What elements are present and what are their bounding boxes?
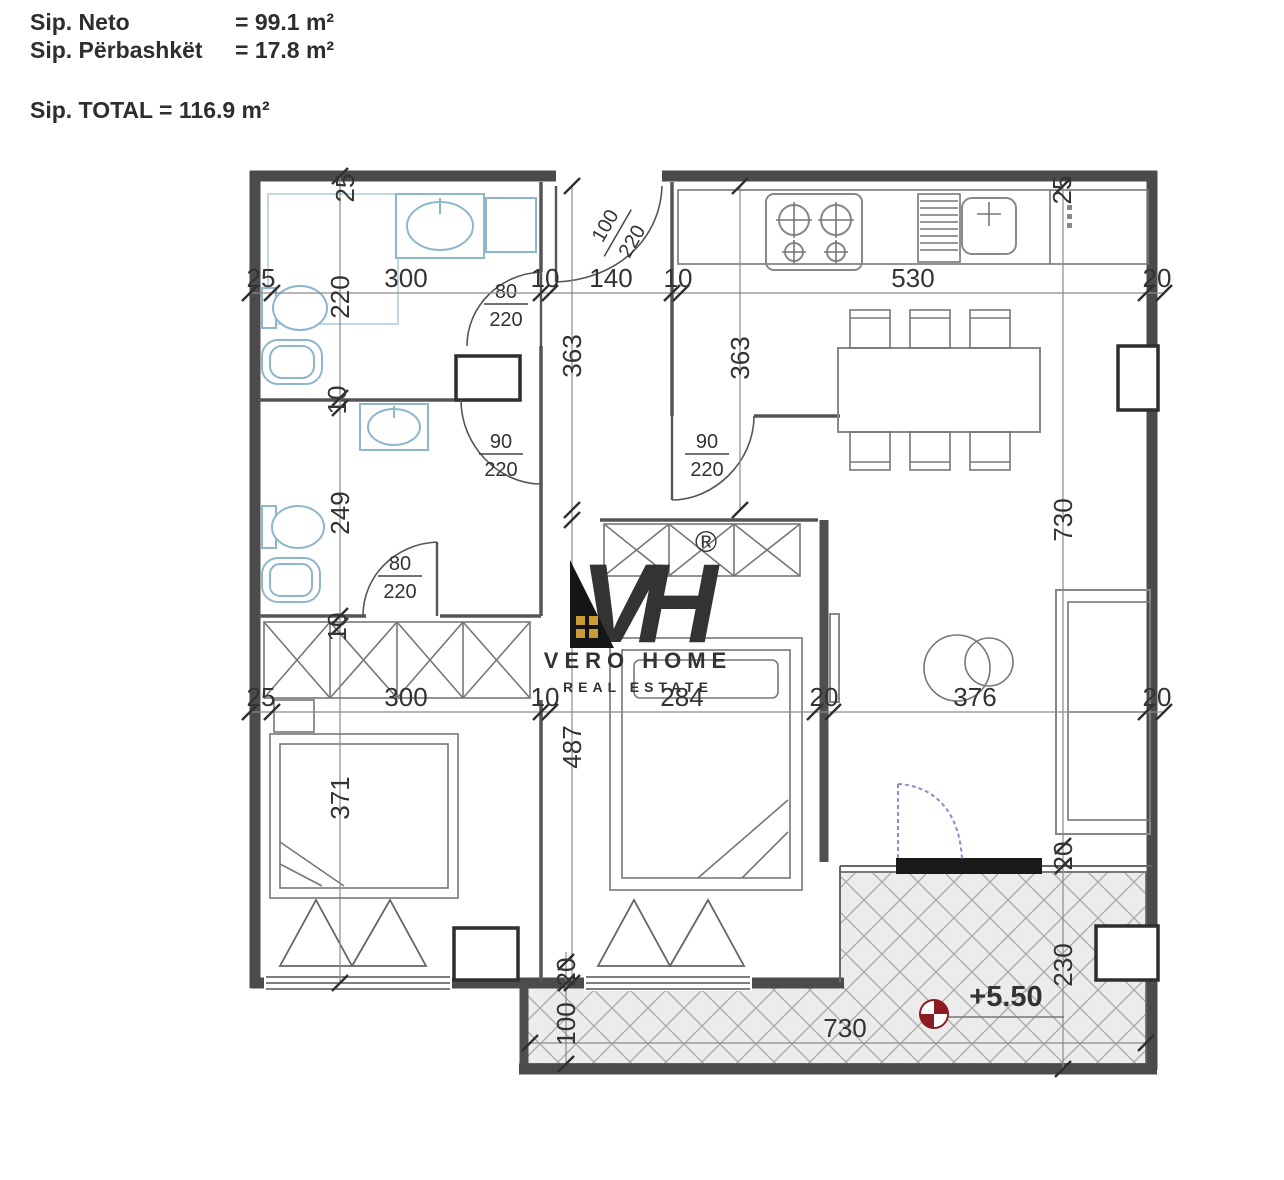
wall-column [1118, 346, 1158, 410]
dim-label: 10 [322, 386, 352, 415]
chair [910, 310, 950, 348]
dining-area [838, 310, 1040, 470]
dim-label: 25 [247, 263, 276, 293]
dim-label: 20 [1143, 263, 1172, 293]
door-width: 80 [389, 553, 411, 575]
terrace-door-sill [896, 858, 1042, 874]
dim-label: 10 [531, 263, 560, 293]
dim-label: 20 [1143, 682, 1172, 712]
elevation-value: +5.50 [969, 981, 1042, 1013]
registered-mark-icon: ® [695, 526, 717, 559]
doors: 100 220 80 220 90 220 90 220 80 [363, 186, 962, 860]
window-swing-triangle [598, 900, 670, 966]
entrance-door-label: 100 220 [583, 197, 656, 270]
door-width: 80 [495, 281, 517, 303]
vent-marks [1067, 205, 1072, 210]
wall-column [454, 928, 518, 980]
vent-marks [1067, 214, 1072, 219]
dim-label: 487 [557, 725, 587, 768]
washing-machine [486, 198, 536, 252]
door-width: 100 [588, 206, 624, 246]
door-height: 220 [690, 459, 723, 481]
door-height: 220 [489, 309, 522, 331]
dim-label: 530 [891, 263, 934, 293]
logo-tagline: REAL ESTATE [563, 679, 713, 695]
door-swing [672, 416, 754, 500]
door-label: 90 220 [479, 431, 523, 481]
floor-plan: 100 220 80 220 90 220 90 220 80 [0, 0, 1284, 1180]
kitchen-counter [678, 190, 1148, 264]
chair [850, 432, 890, 470]
door-height: 220 [383, 581, 416, 603]
door-label: 90 220 [685, 431, 729, 481]
stove [766, 194, 862, 270]
dim-label: 140 [589, 263, 632, 293]
dim-label: 300 [384, 682, 427, 712]
door-height: 220 [484, 459, 517, 481]
chair [970, 310, 1010, 348]
wall-column [1096, 926, 1158, 980]
dim-label: 249 [325, 491, 355, 534]
dim-label: 20 [810, 682, 839, 712]
dim-label: 730 [823, 1013, 866, 1043]
chair [970, 432, 1010, 470]
bed-frame [610, 638, 802, 890]
dim-label: 363 [557, 334, 587, 377]
kitchen [678, 190, 1148, 270]
dim-label: 25 [1047, 176, 1077, 205]
terrace-door-swing [898, 784, 962, 860]
dim-label: 220 [325, 275, 355, 318]
dim-label: 20 [551, 958, 581, 987]
dim-label: 10 [531, 682, 560, 712]
dim-label: 363 [725, 336, 755, 379]
dim-label: 20 [1048, 842, 1078, 871]
chair [910, 432, 950, 470]
dim-label: 10 [664, 263, 693, 293]
bed-mattress [280, 744, 448, 888]
door-height: 220 [615, 222, 651, 262]
window-swing-triangle [670, 900, 744, 966]
door-width: 90 [696, 431, 718, 453]
dim-label: 25 [247, 682, 276, 712]
dim-label: 730 [1048, 498, 1078, 541]
toilet-bowl [272, 506, 324, 548]
dim-label: 300 [384, 263, 427, 293]
dining-table [838, 348, 1040, 432]
sink-drainboard [918, 194, 960, 262]
window-swing-triangle [352, 900, 426, 966]
bedroom-middle [610, 638, 802, 890]
door-width: 90 [490, 431, 512, 453]
window-swing-triangle [280, 900, 352, 966]
dim-label: 25 [330, 174, 360, 203]
dim-label: 10 [322, 613, 352, 642]
dim-label: 371 [325, 776, 355, 819]
sofa-cushions [1068, 602, 1150, 820]
dim-label: 230 [1048, 943, 1078, 986]
dim-label: 100 [551, 1002, 581, 1045]
shaft-column [456, 356, 520, 400]
vent-marks [1067, 223, 1072, 228]
chair [850, 310, 890, 348]
bedroom-left [270, 700, 458, 898]
door-label: 80 220 [484, 281, 528, 331]
logo-brand: VERO HOME [544, 648, 732, 673]
door-label: 80 220 [378, 553, 422, 603]
dim-label: 376 [953, 682, 996, 712]
